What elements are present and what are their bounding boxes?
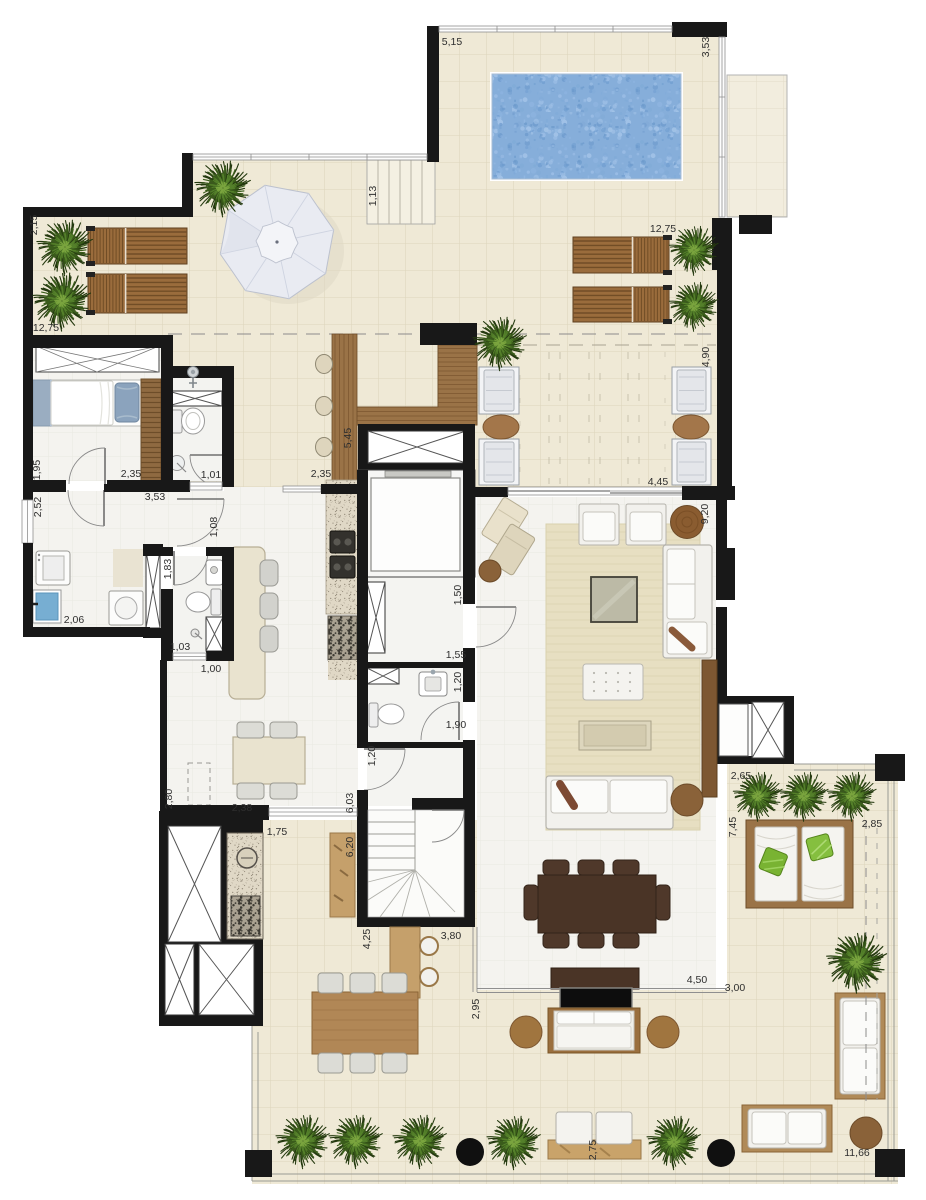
- svg-text:11,66: 11,66: [844, 1147, 870, 1159]
- svg-text:2,75: 2,75: [587, 1140, 599, 1161]
- svg-text:3,80: 3,80: [441, 930, 462, 942]
- svg-text:6,03: 6,03: [344, 793, 356, 814]
- svg-text:1,83: 1,83: [162, 559, 174, 580]
- svg-text:1,20: 1,20: [452, 672, 464, 693]
- svg-text:2,38: 2,38: [232, 802, 253, 814]
- svg-text:3,53: 3,53: [145, 491, 166, 503]
- svg-text:2,95: 2,95: [470, 999, 482, 1020]
- svg-text:9,20: 9,20: [699, 504, 711, 525]
- svg-text:1,03: 1,03: [170, 641, 191, 653]
- svg-text:1,08: 1,08: [208, 517, 220, 538]
- svg-text:1,50: 1,50: [452, 585, 464, 606]
- svg-text:2,85: 2,85: [862, 818, 883, 830]
- svg-text:2,15: 2,15: [28, 215, 40, 236]
- svg-text:1,20: 1,20: [366, 746, 378, 767]
- svg-text:1,75: 1,75: [267, 826, 288, 838]
- svg-text:12,75: 12,75: [650, 223, 676, 235]
- svg-text:1,90: 1,90: [446, 719, 467, 731]
- svg-text:2,80: 2,80: [163, 789, 175, 810]
- svg-text:2,35: 2,35: [121, 468, 142, 480]
- svg-text:1,55: 1,55: [446, 649, 467, 661]
- svg-text:2,65: 2,65: [731, 770, 752, 782]
- svg-text:1,01: 1,01: [201, 469, 222, 481]
- svg-text:6,20: 6,20: [344, 837, 356, 858]
- svg-text:1,00: 1,00: [201, 663, 222, 675]
- svg-text:4,45: 4,45: [648, 476, 669, 488]
- svg-text:3,00: 3,00: [725, 982, 746, 994]
- svg-text:4,50: 4,50: [687, 974, 708, 986]
- svg-text:7,45: 7,45: [727, 817, 739, 838]
- svg-text:2,06: 2,06: [64, 614, 85, 626]
- svg-text:3,53: 3,53: [700, 37, 712, 58]
- svg-text:2,35: 2,35: [311, 468, 332, 480]
- svg-text:12,75: 12,75: [33, 322, 59, 334]
- svg-text:2,52: 2,52: [32, 497, 44, 518]
- svg-text:1,13: 1,13: [367, 186, 379, 207]
- svg-text:1,95: 1,95: [31, 460, 43, 481]
- svg-text:4,25: 4,25: [361, 929, 373, 950]
- svg-text:4,90: 4,90: [700, 347, 712, 368]
- svg-text:5,45: 5,45: [342, 428, 354, 449]
- svg-text:5,15: 5,15: [442, 36, 463, 48]
